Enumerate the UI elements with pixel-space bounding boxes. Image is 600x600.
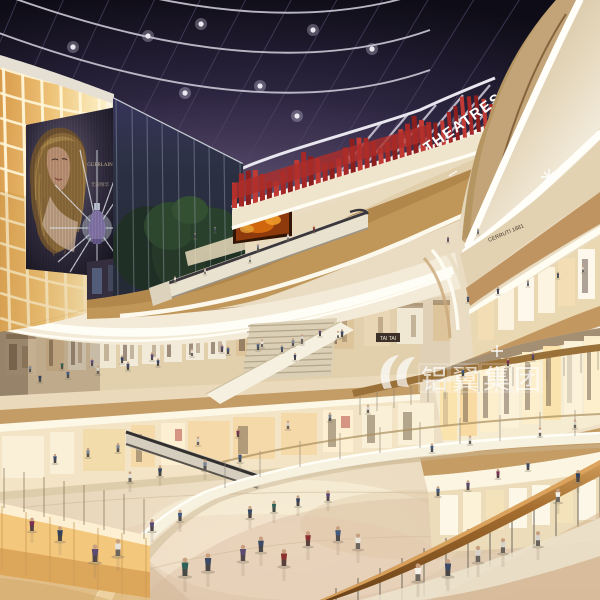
svg-text:铝: 铝: [421, 365, 448, 395]
svg-text:翼: 翼: [452, 365, 479, 395]
svg-text:TAI TAI: TAI TAI: [380, 336, 396, 342]
svg-text:团: 团: [514, 365, 541, 395]
svg-text:集: 集: [483, 365, 510, 395]
